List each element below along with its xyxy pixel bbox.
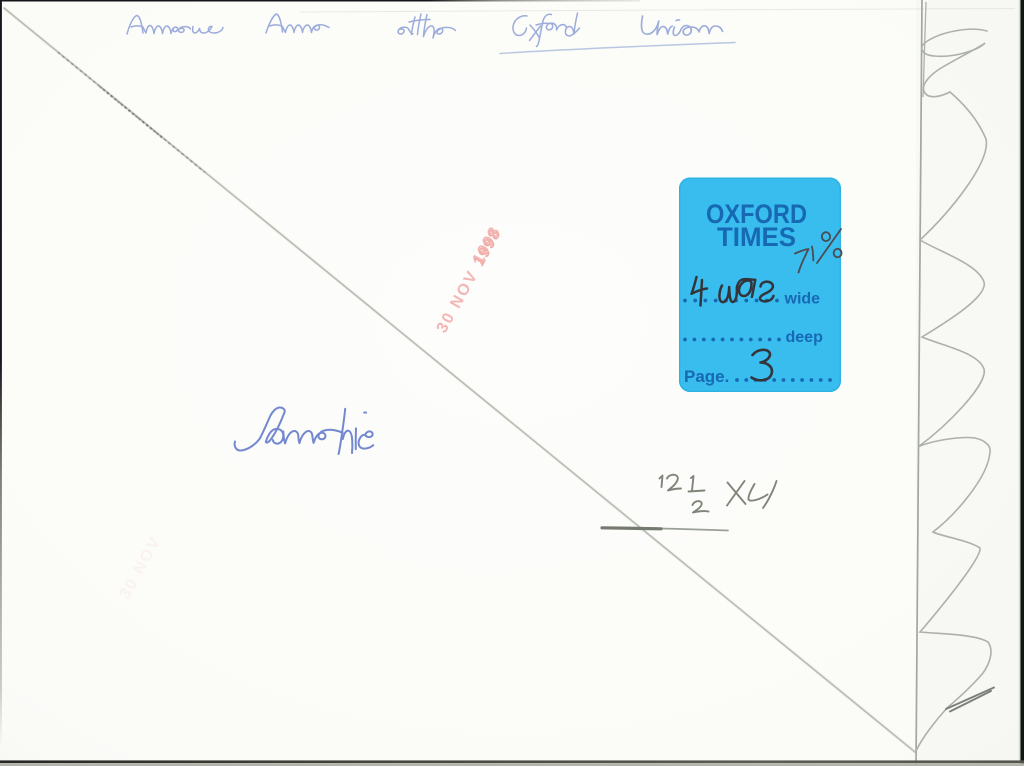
svg-text:wide: wide bbox=[784, 291, 821, 308]
svg-text:deep: deep bbox=[786, 329, 824, 346]
svg-text:Page.: Page. bbox=[684, 367, 729, 386]
svg-text:TIMES: TIMES bbox=[717, 222, 796, 252]
